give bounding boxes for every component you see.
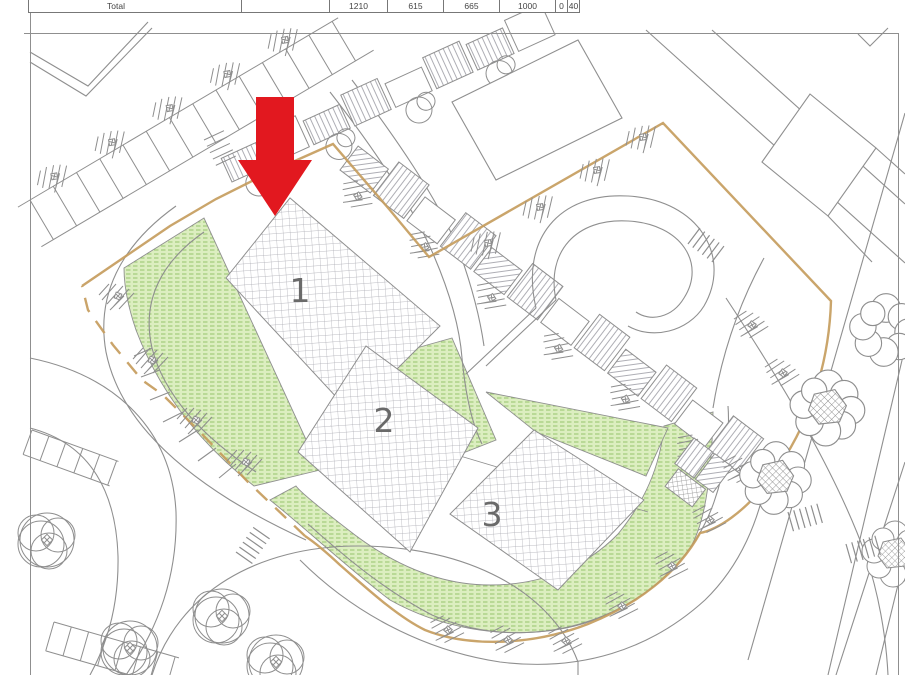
summary-table: Total 1210 615 665 1000 0 40 — [28, 0, 580, 13]
table-cell: 40 — [567, 0, 579, 12]
tree-icon — [32, 158, 75, 198]
tree-icon — [575, 152, 618, 192]
road-ring-east-inner — [713, 258, 764, 408]
road-tr-stub1 — [828, 216, 872, 262]
table-cell — [241, 0, 329, 12]
building-small — [762, 94, 876, 216]
round-tree-icon — [193, 589, 250, 645]
tree-icon — [90, 124, 133, 164]
site-plan: Total 1210 615 665 1000 0 40 — [0, 0, 905, 675]
parking-stall-lines — [30, 21, 356, 239]
round-tree-icon — [101, 621, 158, 675]
table-cell: 0 — [555, 0, 567, 12]
parcel-3-label: 3 — [482, 495, 503, 534]
tree-icon — [263, 21, 306, 61]
table-cell: 665 — [443, 0, 499, 12]
buildings — [452, 40, 876, 216]
round-tree-icon — [247, 635, 304, 675]
parcel-2-label: 2 — [374, 401, 395, 440]
crosswalk-icon — [236, 527, 270, 563]
parking-bl-corner — [46, 622, 179, 675]
cloud-tree-icon — [850, 294, 905, 367]
mark-tr-check — [858, 28, 888, 46]
cloud-tree-icon — [790, 370, 865, 446]
cloud-trees — [740, 294, 905, 587]
tree-icon — [621, 119, 664, 159]
tree-icon — [147, 90, 190, 130]
table-cell: 615 — [387, 0, 443, 12]
table-cell: 1000 — [499, 0, 555, 12]
table-cell: 1210 — [329, 0, 387, 12]
crosswalk-icon — [688, 228, 724, 262]
round-tree-icon — [18, 513, 75, 569]
table-cell-label: Total — [29, 0, 241, 12]
road-tr-stub2 — [876, 148, 905, 174]
parking-bl-upper — [23, 430, 118, 486]
tree-icon — [205, 56, 248, 96]
parcel-1-label: 1 — [290, 271, 311, 310]
site-plan-drawing: 1 2 3 — [0, 0, 905, 675]
crosswalk-icon — [788, 504, 822, 531]
